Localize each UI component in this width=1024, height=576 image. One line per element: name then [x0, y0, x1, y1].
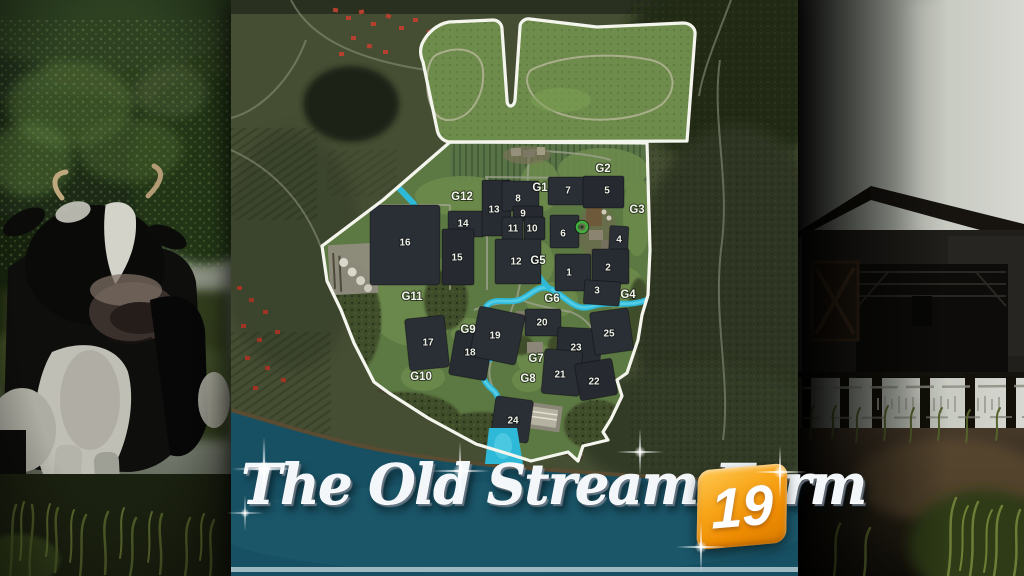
- grass-label-g8: G8: [520, 373, 536, 385]
- field-label-14: 14: [457, 219, 469, 230]
- field-label-5: 5: [604, 186, 610, 197]
- screenshot-root: 1 2 3 4 5 6 7 8 9 10 11 12 13 14 15 16 1…: [0, 0, 1024, 576]
- grass-label-g2: G2: [595, 163, 610, 175]
- field-label-9: 9: [520, 209, 526, 220]
- field-label-25: 25: [603, 329, 615, 340]
- field-label-10: 10: [526, 224, 538, 235]
- grass-label-g6: G6: [544, 293, 559, 305]
- vignette: [0, 0, 231, 576]
- field-label-8: 8: [515, 194, 521, 205]
- field-label-20: 20: [536, 318, 548, 329]
- grass-label-g5: G5: [530, 255, 546, 267]
- field-label-3: 3: [594, 286, 600, 297]
- field-label-1: 1: [566, 268, 572, 279]
- field-label-6: 6: [560, 229, 566, 240]
- grass-label-g3: G3: [629, 204, 644, 216]
- player-marker: [576, 221, 589, 234]
- north-pasture: [421, 19, 696, 142]
- field-label-11: 11: [508, 224, 519, 235]
- grass-label-g10: G10: [410, 371, 432, 383]
- field-3: [583, 280, 621, 306]
- map-preview-card: 1 2 3 4 5 6 7 8 9 10 11 12 13 14 15 16 1…: [231, 0, 798, 576]
- field-label-22: 22: [588, 377, 600, 388]
- field-label-21: 21: [554, 370, 566, 381]
- field-label-2: 2: [605, 263, 611, 274]
- field-label-17: 17: [422, 338, 434, 349]
- field-label-18: 18: [464, 348, 476, 359]
- fs19-logo-text: 19: [710, 476, 774, 537]
- field-label-16: 16: [399, 238, 411, 249]
- field-label-23: 23: [570, 343, 582, 354]
- card-bottom-edge: [231, 567, 798, 572]
- field-label-13: 13: [488, 205, 500, 216]
- grass-label-g9: G9: [460, 324, 475, 336]
- grass-label-g12: G12: [451, 191, 473, 203]
- field-label-4: 4: [616, 235, 622, 246]
- lake: [303, 66, 399, 142]
- grass-label-g1: G1: [532, 182, 548, 194]
- cow-photo-background: [0, 0, 231, 576]
- grass-label-g11: G11: [401, 291, 423, 303]
- field-label-19: 19: [489, 331, 501, 342]
- field-label-12: 12: [510, 257, 522, 268]
- grass-label-g4: G4: [620, 289, 636, 301]
- field-label-7: 7: [565, 186, 571, 197]
- grass-label-g7: G7: [528, 353, 543, 365]
- field-label-15: 15: [451, 253, 463, 264]
- field-label-24: 24: [507, 416, 519, 427]
- fs19-logo-badge: 19: [696, 463, 787, 550]
